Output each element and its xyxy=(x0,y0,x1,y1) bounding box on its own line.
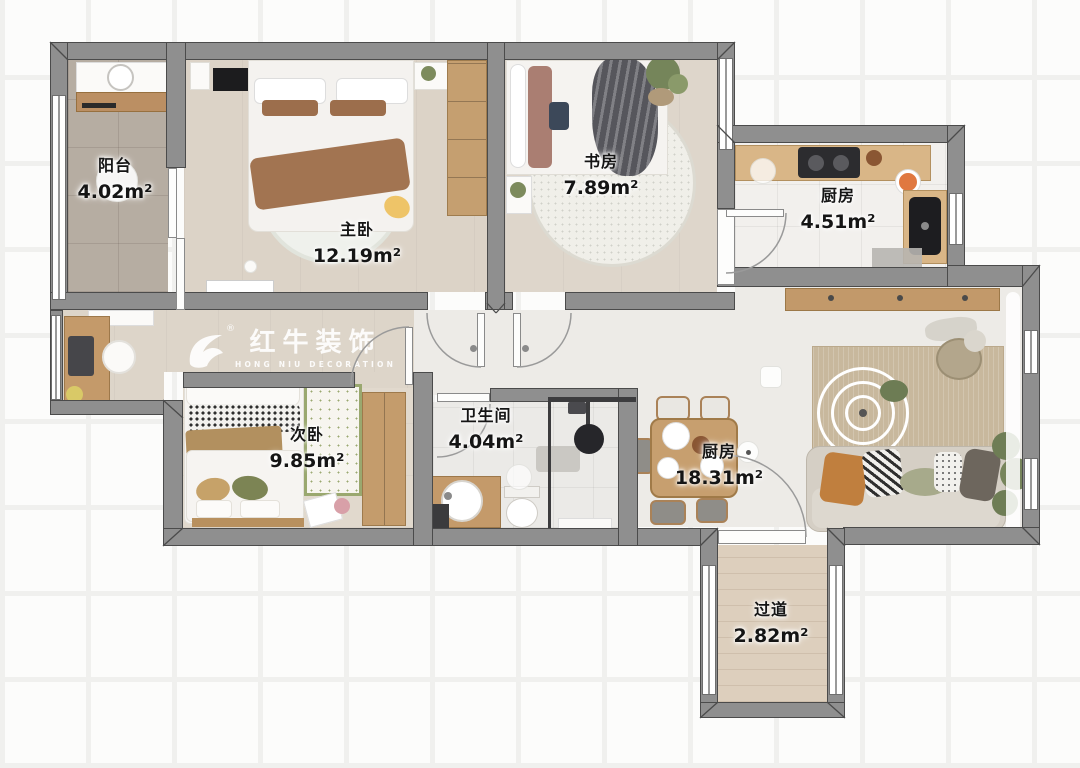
shower-glass-partition xyxy=(548,400,551,528)
door-leaf-study xyxy=(513,313,521,367)
bed-frame xyxy=(192,518,304,527)
console-knob xyxy=(828,295,834,301)
room-label-master-bedroom: 主卧 12.19m² xyxy=(313,222,401,266)
console-knob xyxy=(897,295,903,301)
door-leaf-second-bedroom xyxy=(405,327,413,385)
door-leaf-kitchen xyxy=(726,209,784,217)
shower-glass-top xyxy=(548,397,636,402)
living-light xyxy=(760,366,782,388)
wall-segment xyxy=(50,42,735,60)
window xyxy=(1024,330,1038,374)
window xyxy=(702,565,716,695)
brand-logo xyxy=(182,326,228,372)
toilet-bowl xyxy=(506,498,538,528)
tv-console xyxy=(785,288,1000,311)
bathroom-light xyxy=(506,464,532,490)
kitchen-light xyxy=(750,158,776,184)
registered-mark: ® xyxy=(226,324,235,334)
balcony-counter xyxy=(76,92,168,112)
wardrobe-master xyxy=(447,60,487,216)
floor-corridor-light xyxy=(414,310,638,395)
door-knob xyxy=(470,345,477,352)
window xyxy=(52,95,66,300)
laptop xyxy=(68,336,94,376)
room-label-bathroom: 卫生间 4.04m² xyxy=(449,408,524,452)
door-leaf-entry xyxy=(718,530,806,544)
window xyxy=(1024,458,1038,510)
tv-master xyxy=(213,68,251,91)
brand-watermark: ® 红牛装饰 HONG NIU DECORATION xyxy=(182,326,396,372)
brand-name: 红牛装饰 xyxy=(250,330,382,356)
pillow xyxy=(330,100,386,116)
wall-segment xyxy=(618,388,638,546)
room-label-study: 书房 7.89m² xyxy=(564,154,639,198)
wall-segment xyxy=(717,125,965,143)
burner xyxy=(808,155,824,171)
pillow xyxy=(510,64,526,168)
dining-chair xyxy=(650,500,686,525)
door-leaf-master xyxy=(477,313,485,367)
sliding-door-panel xyxy=(168,168,177,238)
floor-plan-canvas: ® 红牛装饰 HONG NIU DECORATION xyxy=(0,0,1080,768)
flowers xyxy=(334,498,350,514)
curtain xyxy=(1006,292,1020,540)
basket xyxy=(648,88,674,106)
wall-segment xyxy=(50,292,428,310)
bowl xyxy=(866,150,882,166)
pillow-dotted xyxy=(934,452,962,492)
wardrobe-second xyxy=(362,392,406,526)
door-knob xyxy=(522,345,529,352)
wall-segment xyxy=(487,42,505,310)
vase xyxy=(964,330,986,352)
washing-machine xyxy=(107,64,134,91)
room-label-hallway: 过道 2.82m² xyxy=(734,602,809,646)
nightstand xyxy=(190,62,210,90)
door-leaf-bathroom xyxy=(437,393,490,402)
door-opening-kitchen xyxy=(717,209,735,285)
shower-arm xyxy=(586,402,590,426)
wall-segment xyxy=(565,292,735,310)
wall-segment xyxy=(163,400,183,546)
wall-segment xyxy=(843,527,1040,545)
pillow-striped xyxy=(861,448,904,498)
room-label-second-bedroom: 次卧 9.85m² xyxy=(270,427,345,471)
burner xyxy=(833,155,849,171)
pillow xyxy=(196,500,232,518)
window xyxy=(949,193,963,245)
sliding-door-panel xyxy=(176,238,185,310)
rug-plant xyxy=(880,380,908,402)
swirl-center xyxy=(859,409,867,417)
window xyxy=(829,565,843,695)
cushion xyxy=(549,102,569,130)
bath-mat xyxy=(536,446,580,472)
pillow xyxy=(240,500,280,518)
pillow xyxy=(262,100,318,116)
window xyxy=(719,58,733,150)
console-knob xyxy=(962,295,968,301)
shower-head xyxy=(574,424,604,454)
wall-segment xyxy=(717,267,965,287)
wall-segment xyxy=(413,372,433,546)
shower-control xyxy=(568,402,586,414)
wall-segment xyxy=(183,372,355,388)
room-label-kitchen: 厨房 4.51m² xyxy=(801,188,876,232)
dining-chair xyxy=(696,498,728,523)
floor-plan-page: { "watermark": { "brand": "红牛装饰", "subti… xyxy=(0,0,1080,768)
wall-segment xyxy=(700,702,845,718)
window xyxy=(51,315,61,400)
plant-pot xyxy=(510,182,526,198)
room-label-living-dining: 厨房 18.31m² xyxy=(675,444,763,488)
room-label-balcony: 阳台 4.02m² xyxy=(78,158,153,202)
kitchen-mat xyxy=(872,248,922,268)
plant-pot xyxy=(421,66,436,81)
desk-chair xyxy=(102,340,136,374)
brand-subtitle: HONG NIU DECORATION xyxy=(235,360,396,369)
pendant-light xyxy=(244,260,257,273)
faucet xyxy=(921,222,929,230)
balcony-slot xyxy=(82,103,116,108)
faucet xyxy=(444,492,452,500)
wall-segment xyxy=(166,42,186,168)
